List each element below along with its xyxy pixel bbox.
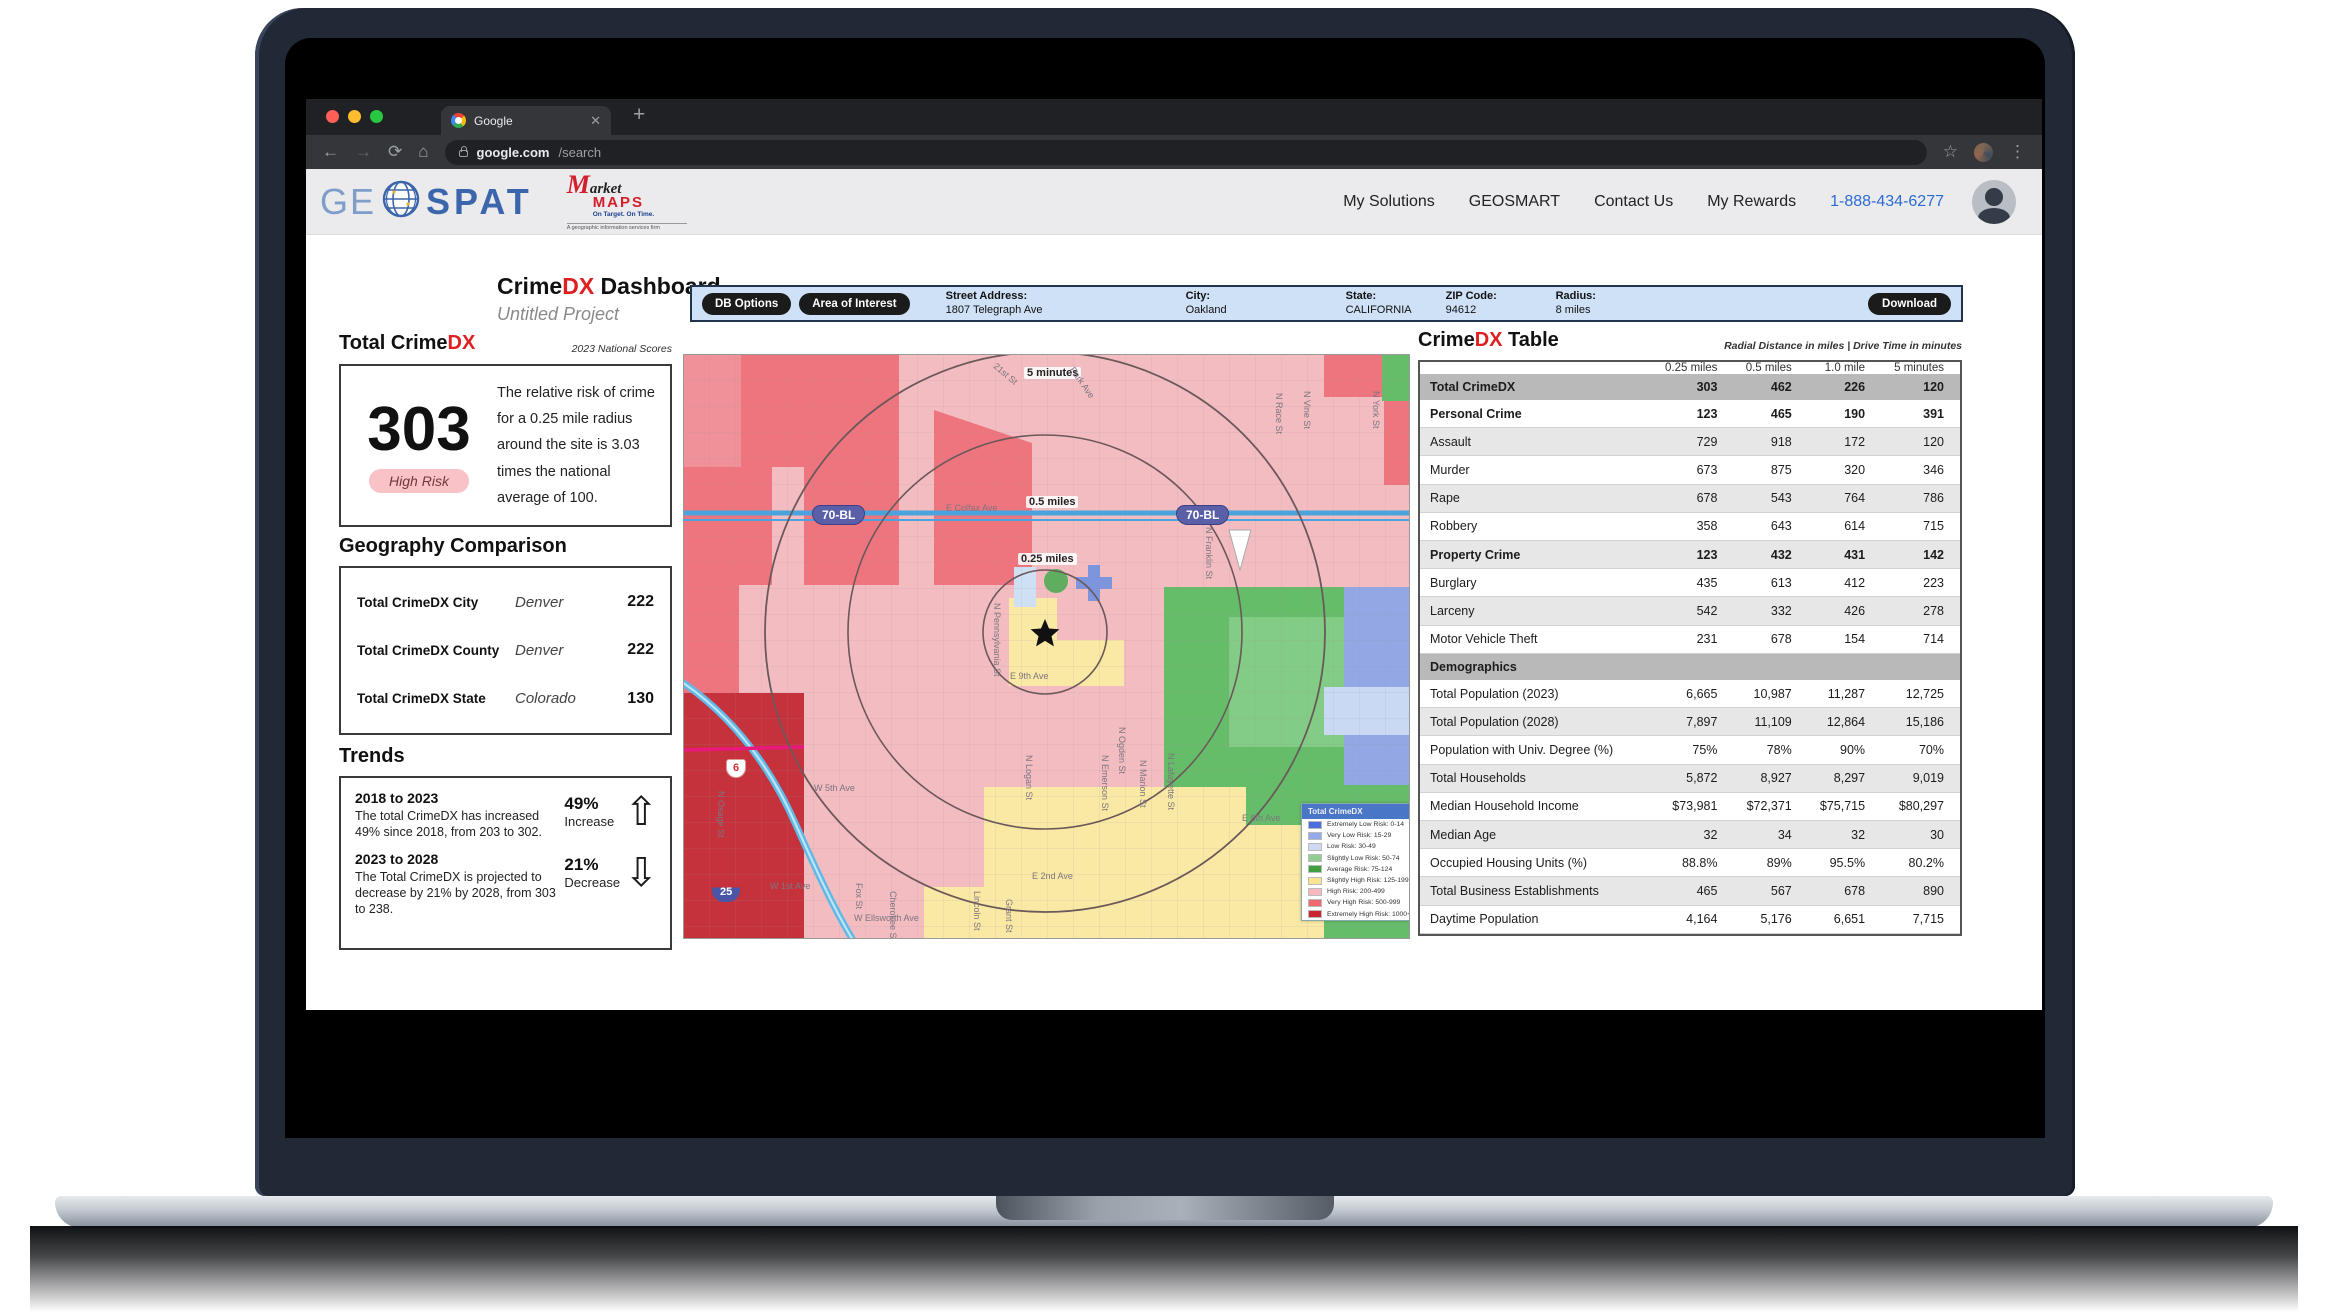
field-value: Oakland	[1186, 304, 1346, 318]
geo-label: Total CrimeDX County	[357, 643, 515, 658]
geo-place: Denver	[515, 642, 627, 659]
trend-stat: 21%Decrease	[564, 855, 624, 918]
minimize-window-button[interactable]	[348, 110, 361, 123]
row-value: 30	[1881, 821, 1960, 849]
row-value: 391	[1881, 400, 1960, 427]
row-value: 6,651	[1808, 905, 1881, 933]
row-value: 70%	[1881, 736, 1960, 764]
field-label: Street Address:	[946, 290, 1186, 304]
marketmaps-tagline: On Target. On Time.	[593, 212, 687, 219]
zoom-window-button[interactable]	[370, 110, 383, 123]
row-label: Property Crime	[1420, 540, 1651, 568]
row-value: 95.5%	[1808, 849, 1881, 877]
row-label: Motor Vehicle Theft	[1420, 625, 1651, 653]
map-label-n-lafayette-st: N Lafayette St	[1166, 753, 1176, 810]
trend-period: 2023 to 2028	[355, 851, 560, 867]
crimedx-table-heading: CrimeDX Table Radial Distance in miles |…	[1418, 329, 1962, 352]
row-label: Robbery	[1420, 512, 1651, 540]
map-label-0-5-miles: 0.5 miles	[1026, 496, 1078, 508]
row-value: 678	[1651, 484, 1733, 512]
back-icon[interactable]: ←	[322, 142, 339, 162]
col-1-0-mile: 1.0 mile	[1808, 362, 1881, 374]
total-crimedx-card: 303 High Risk The relative risk of crime…	[339, 364, 672, 527]
map-legend: Total CrimeDX Extremely Low Risk: 0-14Ve…	[1301, 803, 1410, 921]
field-value: 8 miles	[1556, 304, 1676, 318]
field-value: 1807 Telegraph Ave	[946, 304, 1186, 318]
table-row-rape: Rape678543764786	[1420, 484, 1960, 512]
address-toolbar: DB Options Area of Interest Street Addre…	[690, 285, 1963, 322]
row-value: 88.8%	[1651, 849, 1733, 877]
row-value: 5,872	[1651, 764, 1733, 792]
map-label-e-8th-ave: E 8th Ave	[1242, 813, 1280, 823]
map-label-n-york-st: N York St	[1371, 391, 1381, 429]
menu-dots-icon[interactable]: ⋮	[2009, 142, 2026, 162]
table-row-total-business-establishments: Total Business Establishments46556767889…	[1420, 877, 1960, 905]
trend-direction: Decrease	[564, 875, 624, 890]
table-row-total-population-2028: Total Population (2028)7,89711,10912,864…	[1420, 708, 1960, 736]
browser-tab[interactable]: Google ✕	[441, 106, 611, 135]
table-note: Radial Distance in miles | Drive Time in…	[1724, 340, 1962, 352]
toolbar-field-state[interactable]: State:CALIFORNIA	[1346, 290, 1446, 318]
legend-swatch	[1308, 888, 1322, 896]
toolbar-fields: Street Address:1807 Telegraph AveCity:Oa…	[946, 290, 1676, 318]
legend-item-slightly-high-risk-125-199: Slightly High Risk: 125-199	[1302, 875, 1410, 886]
row-value: 875	[1733, 456, 1807, 484]
row-value: 15,186	[1881, 708, 1960, 736]
marketmaps-logo: Market MAPS On Target. On Time. A geogra…	[567, 172, 687, 231]
google-favicon	[451, 113, 466, 128]
row-value: 120	[1881, 374, 1960, 400]
row-value: 890	[1881, 877, 1960, 905]
row-value: $75,715	[1808, 792, 1881, 820]
row-label: Murder	[1420, 456, 1651, 484]
reload-icon[interactable]: ⟳	[388, 142, 402, 162]
row-value: 714	[1881, 625, 1960, 653]
row-value: 614	[1808, 512, 1881, 540]
row-value: 7,715	[1881, 905, 1960, 933]
window-controls	[326, 110, 383, 123]
row-value: 34	[1733, 821, 1807, 849]
legend-item-very-low-risk-15-29: Very Low Risk: 15-29	[1302, 830, 1410, 841]
row-value: 123	[1651, 540, 1733, 568]
crime-risk-map[interactable]: 5 minutes0.5 miles0.25 milesE Colfax Ave…	[683, 354, 1410, 939]
map-label-n-franklin-st: N Franklin St	[1204, 527, 1214, 579]
col-0-5-miles: 0.5 miles	[1733, 362, 1807, 374]
row-value: 918	[1733, 428, 1807, 456]
geo-label: Total CrimeDX State	[357, 691, 515, 706]
nav-item-geosmart[interactable]: GEOSMART	[1469, 193, 1560, 211]
row-label: Total Population (2023)	[1420, 680, 1651, 707]
geospat-logo[interactable]: GE	[320, 179, 533, 224]
legend-label: Average Risk: 75-124	[1327, 866, 1392, 873]
row-label: Demographics	[1420, 653, 1651, 680]
row-label: Total Population (2028)	[1420, 708, 1651, 736]
legend-swatch	[1308, 865, 1322, 873]
nav-item-my-rewards[interactable]: My Rewards	[1707, 193, 1796, 211]
legend-label: Extremely High Risk: 1000+	[1327, 911, 1410, 918]
trend-direction: Increase	[564, 814, 624, 829]
table-row-median-household-income: Median Household Income$73,981$72,371$75…	[1420, 792, 1960, 820]
row-label: Assault	[1420, 428, 1651, 456]
dashboard-title-block: CrimeDX Dashboard Untitled Project	[497, 273, 721, 325]
row-label: Total Business Establishments	[1420, 877, 1651, 905]
row-value: 358	[1651, 512, 1733, 540]
row-label: Daytime Population	[1420, 905, 1651, 933]
col-spacer	[1420, 362, 1651, 374]
trend-description: The total CrimeDX has increased 49% sinc…	[355, 808, 560, 841]
row-value: 32	[1651, 821, 1733, 849]
nav-item-contact-us[interactable]: Contact Us	[1594, 193, 1673, 211]
geography-heading: Geography Comparison	[339, 535, 672, 558]
legend-swatch	[1308, 832, 1322, 840]
row-value: 431	[1808, 540, 1881, 568]
row-value: 154	[1808, 625, 1881, 653]
row-value	[1808, 653, 1881, 680]
legend-swatch	[1308, 910, 1322, 918]
forward-icon[interactable]: →	[355, 142, 372, 162]
table-row-property-crime: Property Crime123432431142	[1420, 540, 1960, 568]
row-value: 78%	[1733, 736, 1807, 764]
toolbar-field-city[interactable]: City:Oakland	[1186, 290, 1346, 318]
row-value: 613	[1733, 569, 1807, 597]
geo-row-total-crimedx-county: Total CrimeDX CountyDenver222	[357, 641, 654, 659]
table-row-population-with-univ-degree: Population with Univ. Degree (%)75%78%90…	[1420, 736, 1960, 764]
project-name: Untitled Project	[497, 304, 721, 325]
legend-item-average-risk-75-124: Average Risk: 75-124	[1302, 864, 1410, 875]
row-value: 8,297	[1808, 764, 1881, 792]
row-value: 89%	[1733, 849, 1807, 877]
globe-icon	[381, 179, 421, 224]
score-description: The relative risk of crime for a 0.25 mi…	[483, 380, 656, 510]
national-scores-note: 2023 National Scores	[572, 343, 672, 355]
table-row-personal-crime: Personal Crime123465190391	[1420, 400, 1960, 427]
trend-text: 2018 to 2023The total CrimeDX has increa…	[355, 790, 560, 841]
map-label-e-2nd-ave: E 2nd Ave	[1032, 871, 1073, 881]
map-label-w-5th-ave: W 5th Ave	[814, 783, 855, 793]
row-value: 643	[1733, 512, 1807, 540]
row-value	[1881, 653, 1960, 680]
legend-item-extremely-high-risk-1000: Extremely High Risk: 1000+	[1302, 909, 1410, 920]
row-value: 332	[1733, 597, 1807, 625]
geospat-page: GE	[306, 169, 2042, 1010]
legend-swatch	[1308, 854, 1322, 862]
toolbar-field-radius[interactable]: Radius:8 miles	[1556, 290, 1676, 318]
user-avatar[interactable]	[1972, 180, 2016, 224]
row-value: 231	[1651, 625, 1733, 653]
browser-toolbar: ← → ⟳ ⌂ google.com /search ☆ ⋮	[306, 135, 2042, 169]
row-label: Total CrimeDX	[1420, 374, 1651, 400]
row-value: 80.2%	[1881, 849, 1960, 877]
row-value: 75%	[1651, 736, 1733, 764]
row-label: Median Household Income	[1420, 792, 1651, 820]
legend-label: Slightly High Risk: 125-199	[1327, 877, 1409, 884]
row-label: Population with Univ. Degree (%)	[1420, 736, 1651, 764]
highway-shield-70-bl: 70-BL	[812, 505, 865, 525]
map-label-grant-st: Grant St	[1004, 899, 1014, 933]
field-value: 94612	[1446, 304, 1556, 318]
logo-spat-text: SPAT	[426, 181, 533, 223]
geo-value: 222	[627, 593, 654, 611]
row-value: 465	[1651, 877, 1733, 905]
table-row-total-population-2023: Total Population (2023)6,66510,98711,287…	[1420, 680, 1960, 707]
table-row-occupied-housing-units: Occupied Housing Units (%)88.8%89%95.5%8…	[1420, 849, 1960, 877]
row-value: 172	[1808, 428, 1881, 456]
row-value: 223	[1881, 569, 1960, 597]
geo-value: 222	[627, 641, 654, 659]
map-label-cherokee-st: Cherokee St	[888, 891, 898, 939]
map-label-n-osage-st: N Osage St	[716, 791, 726, 838]
row-value: 123	[1651, 400, 1733, 427]
toolbar-field-street-address[interactable]: Street Address:1807 Telegraph Ave	[946, 290, 1186, 318]
geo-place: Denver	[515, 594, 627, 611]
arrow-up-icon: ⇧	[624, 792, 658, 841]
site-header: GE	[306, 169, 2042, 235]
row-value	[1733, 653, 1807, 680]
row-label: Occupied Housing Units (%)	[1420, 849, 1651, 877]
geo-label: Total CrimeDX City	[357, 595, 515, 610]
phone-link[interactable]: 1-888-434-6277	[1830, 193, 1944, 211]
row-label: Total Households	[1420, 764, 1651, 792]
new-tab-button[interactable]: +	[633, 103, 645, 127]
trend-description: The Total CrimeDX is projected to decrea…	[355, 869, 560, 918]
row-value: 10,987	[1733, 680, 1807, 707]
map-label-e-colfax-ave: E Colfax Ave	[946, 503, 997, 513]
total-crimedx-heading: Total CrimeDX 2023 National Scores	[339, 332, 672, 355]
geo-row-total-crimedx-city: Total CrimeDX CityDenver222	[357, 593, 654, 611]
row-value: 543	[1733, 484, 1807, 512]
table-row-median-age: Median Age32343230	[1420, 821, 1960, 849]
row-value: 465	[1733, 400, 1807, 427]
row-value: 462	[1733, 374, 1807, 400]
map-label-0-25-miles: 0.25 miles	[1018, 553, 1077, 565]
row-label: Median Age	[1420, 821, 1651, 849]
geo-place: Colorado	[515, 690, 627, 707]
nav-item-my-solutions[interactable]: My Solutions	[1343, 193, 1435, 211]
table-row-motor-vehicle-theft: Motor Vehicle Theft231678154714	[1420, 625, 1960, 653]
db-options-button[interactable]: DB Options	[702, 293, 791, 315]
browser-window: Google ✕ + ← → ⟳ ⌂ google.com /search ☆ …	[306, 99, 2042, 1010]
legend-label: High Risk: 200-499	[1327, 888, 1385, 895]
field-label: State:	[1346, 290, 1446, 304]
laptop-lid-notch	[996, 1196, 1334, 1220]
field-label: City:	[1186, 290, 1346, 304]
map-label-n-marion-st: N Marion St	[1138, 760, 1148, 808]
laptop-base	[55, 1196, 2273, 1228]
browser-profile-avatar[interactable]	[1974, 143, 1993, 162]
legend-item-low-risk-30-49: Low Risk: 30-49	[1302, 841, 1410, 852]
row-value: 11,287	[1808, 680, 1881, 707]
page-title: CrimeDX Dashboard	[497, 273, 721, 300]
geo-value: 130	[627, 690, 654, 708]
row-value: $72,371	[1733, 792, 1807, 820]
legend-item-very-high-risk-500-999: Very High Risk: 500-999	[1302, 897, 1410, 908]
legend-item-high-risk-200-499: High Risk: 200-499	[1302, 886, 1410, 897]
geography-comparison-card: Total CrimeDX CityDenver222Total CrimeDX…	[339, 566, 672, 735]
geo-row-total-crimedx-state: Total CrimeDX StateColorado130	[357, 690, 654, 708]
row-value: 8,927	[1733, 764, 1807, 792]
table-row-larceny: Larceny542332426278	[1420, 597, 1960, 625]
trends-card: 2018 to 2023The total CrimeDX has increa…	[339, 776, 672, 950]
row-value: 412	[1808, 569, 1881, 597]
row-label: Rape	[1420, 484, 1651, 512]
browser-tab-strip: Google ✕ +	[306, 99, 2042, 135]
row-value: 303	[1651, 374, 1733, 400]
arrow-down-icon: ⇩	[624, 853, 658, 918]
row-value: 190	[1808, 400, 1881, 427]
row-value	[1651, 653, 1733, 680]
table-row-total-households: Total Households5,8728,9278,2979,019	[1420, 764, 1960, 792]
row-value: 567	[1733, 877, 1807, 905]
map-label-e-9th-ave: E 9th Ave	[1010, 671, 1048, 681]
legend-label: Extremely Low Risk: 0-14	[1327, 821, 1404, 828]
row-value: 4,164	[1651, 905, 1733, 933]
col-5-minutes: 5 minutes	[1881, 362, 1960, 374]
map-label-w-ellsworth-ave: W Ellsworth Ave	[854, 913, 919, 923]
legend-item-slightly-low-risk-50-74: Slightly Low Risk: 50-74	[1302, 853, 1410, 864]
tab-close-icon[interactable]: ✕	[590, 113, 601, 129]
row-value: 7,897	[1651, 708, 1733, 736]
legend-label: Very High Risk: 500-999	[1327, 899, 1400, 906]
row-label: Burglary	[1420, 569, 1651, 597]
download-button[interactable]: Download	[1868, 293, 1951, 315]
highway-shield-70-bl: 70-BL	[1176, 505, 1229, 525]
row-value: 715	[1881, 512, 1960, 540]
row-value: 542	[1651, 597, 1733, 625]
row-label: Larceny	[1420, 597, 1651, 625]
secure-lock-icon	[459, 150, 468, 157]
row-label: Personal Crime	[1420, 400, 1651, 427]
map-label-n-vine-st: N Vine St	[1302, 391, 1312, 429]
legend-label: Slightly Low Risk: 50-74	[1327, 855, 1400, 862]
legend-swatch	[1308, 843, 1322, 851]
map-label-n-emerson-st: N Emerson St	[1100, 755, 1110, 811]
field-label: ZIP Code:	[1446, 290, 1556, 304]
tab-title: Google	[474, 114, 582, 128]
trend-stat: 49%Increase	[564, 794, 624, 841]
table-row-burglary: Burglary435613412223	[1420, 569, 1960, 597]
row-value: 12,864	[1808, 708, 1881, 736]
row-value: 729	[1651, 428, 1733, 456]
laptop-screen: Google ✕ + ← → ⟳ ⌂ google.com /search ☆ …	[285, 38, 2045, 1138]
col-0-25-miles: 0.25 miles	[1651, 362, 1733, 374]
row-value: 678	[1808, 877, 1881, 905]
trend-item-2018-to-2023: 2018 to 2023The total CrimeDX has increa…	[355, 790, 658, 841]
legend-swatch	[1308, 899, 1322, 907]
map-label-lincoln-st: Lincoln St	[972, 891, 982, 931]
crimedx-table: 0.25 miles0.5 miles1.0 mile5 minutes Tot…	[1418, 360, 1962, 936]
table-column-headers: 0.25 miles0.5 miles1.0 mile5 minutes	[1420, 362, 1960, 374]
row-value: 435	[1651, 569, 1733, 597]
row-value: $73,981	[1651, 792, 1733, 820]
map-label-n-race-st: N Race St	[1274, 393, 1284, 434]
row-value: 426	[1808, 597, 1881, 625]
row-value: 11,109	[1733, 708, 1807, 736]
map-label-n-ogden-st: N Ogden St	[1117, 727, 1127, 774]
row-value: 786	[1881, 484, 1960, 512]
legend-item-extremely-low-risk-0-14: Extremely Low Risk: 0-14	[1302, 819, 1410, 830]
table-row-assault: Assault729918172120	[1420, 428, 1960, 456]
bookmark-star-icon[interactable]: ☆	[1943, 142, 1958, 162]
legend-items: Extremely Low Risk: 0-14Very Low Risk: 1…	[1302, 819, 1410, 920]
row-value: 120	[1881, 428, 1960, 456]
address-bar[interactable]: google.com /search	[445, 140, 1927, 165]
row-value: 764	[1808, 484, 1881, 512]
trend-percent: 49%	[564, 794, 624, 814]
row-value: 5,176	[1733, 905, 1807, 933]
trend-period: 2018 to 2023	[355, 790, 560, 806]
logo-ge-text: GE	[320, 181, 376, 223]
map-label-n-logan-st: N Logan St	[1024, 755, 1034, 800]
home-icon[interactable]: ⌂	[418, 142, 428, 162]
toolbar-field-zip-code[interactable]: ZIP Code:94612	[1446, 290, 1556, 318]
legend-label: Low Risk: 30-49	[1327, 843, 1376, 850]
url-host: google.com	[477, 145, 550, 160]
row-value: 673	[1651, 456, 1733, 484]
row-value: 278	[1881, 597, 1960, 625]
row-value: 32	[1808, 821, 1881, 849]
row-value: 142	[1881, 540, 1960, 568]
map-label-fox-st: Fox St	[854, 883, 864, 909]
row-value: $80,297	[1881, 792, 1960, 820]
row-value: 90%	[1808, 736, 1881, 764]
row-value: 678	[1733, 625, 1807, 653]
map-label-n-pennsylvania-st: N Pennsylvania St	[992, 603, 1002, 677]
total-crimedx-score: 303	[355, 399, 483, 461]
laptop-shadow	[30, 1226, 2298, 1312]
marketmaps-m: M	[567, 170, 590, 199]
trend-text: 2023 to 2028The Total CrimeDX is project…	[355, 851, 560, 918]
row-value: 9,019	[1881, 764, 1960, 792]
marketmaps-subtext: A geographic information services firm	[567, 223, 687, 232]
marketmaps-maps: MAPS	[593, 195, 687, 210]
main-nav: My SolutionsGEOSMARTContact UsMy Rewards	[1343, 193, 1796, 211]
url-path: /search	[558, 145, 601, 160]
row-value: 432	[1733, 540, 1807, 568]
field-value: CALIFORNIA	[1346, 304, 1446, 318]
trend-percent: 21%	[564, 855, 624, 875]
legend-swatch	[1308, 821, 1322, 829]
trend-item-2023-to-2028: 2023 to 2028The Total CrimeDX is project…	[355, 851, 658, 918]
table-row-demographics: Demographics	[1420, 653, 1960, 680]
area-of-interest-button[interactable]: Area of Interest	[799, 293, 909, 315]
legend-swatch	[1308, 877, 1322, 885]
risk-badge: High Risk	[369, 469, 469, 493]
close-window-button[interactable]	[326, 110, 339, 123]
trends-heading: Trends	[339, 745, 672, 768]
row-value: 346	[1881, 456, 1960, 484]
row-value: 6,665	[1651, 680, 1733, 707]
table-row-daytime-population: Daytime Population4,1645,1766,6517,715	[1420, 905, 1960, 933]
row-value: 320	[1808, 456, 1881, 484]
row-value: 12,725	[1881, 680, 1960, 707]
laptop-frame: Google ✕ + ← → ⟳ ⌂ google.com /search ☆ …	[255, 8, 2075, 1196]
row-value: 226	[1808, 374, 1881, 400]
table-row-robbery: Robbery358643614715	[1420, 512, 1960, 540]
map-label-w-1st-ave: W 1st Ave	[770, 881, 810, 891]
table-row-total-crimedx: Total CrimeDX303462226120	[1420, 374, 1960, 400]
table-row-murder: Murder673875320346	[1420, 456, 1960, 484]
legend-title: Total CrimeDX	[1302, 804, 1410, 819]
legend-label: Very Low Risk: 15-29	[1327, 832, 1391, 839]
field-label: Radius:	[1556, 290, 1676, 304]
